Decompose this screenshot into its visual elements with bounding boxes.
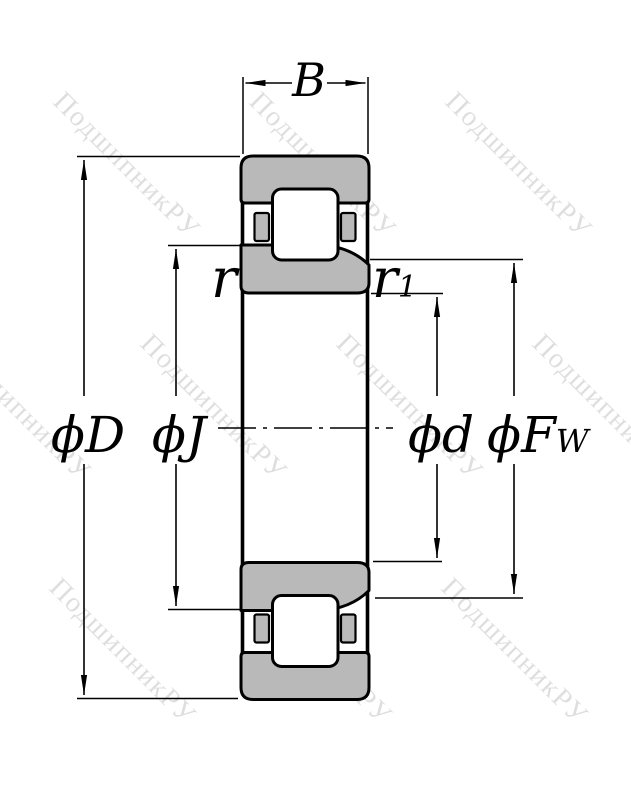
chamfer-label-r1-sub: 1 [398, 270, 417, 305]
bearing-cross-section-diagram: ПодшипникРУ ПодшипникРУ ПодшипникРУ Подш… [0, 0, 631, 792]
dimension-label-bore-diameter: ϕd [408, 406, 474, 464]
dimension-label-outer-diameter: ϕD [51, 406, 125, 464]
watermark-text: ПодшипникРУ [47, 86, 206, 245]
chamfer-label-r1: r1 [372, 247, 417, 310]
watermark-text: ПодшипникРУ [43, 572, 202, 731]
bearing-drawing-page: ПодшипникРУ ПодшипникРУ ПодшипникРУ Подш… [0, 0, 631, 792]
dimension-label-raceway-main: ϕF [487, 406, 558, 464]
bearing-top-section [241, 156, 369, 293]
dimension-label-raceway-diameter: ϕFW [487, 406, 592, 464]
dimension-label-b: B [291, 53, 326, 107]
chamfer-label-r1-main: r [372, 247, 401, 310]
bearing-bottom-section [241, 563, 369, 700]
dimension-raceway-diameter: ϕFW [370, 260, 592, 599]
dimension-label-raceway-sub: W [556, 422, 592, 460]
chamfer-label-r: r [211, 247, 240, 310]
dimension-label-rib-diameter: ϕJ [152, 406, 209, 464]
watermark-text: ПодшипникРУ [435, 572, 594, 731]
watermark-text: ПодшипникРУ [439, 86, 598, 245]
